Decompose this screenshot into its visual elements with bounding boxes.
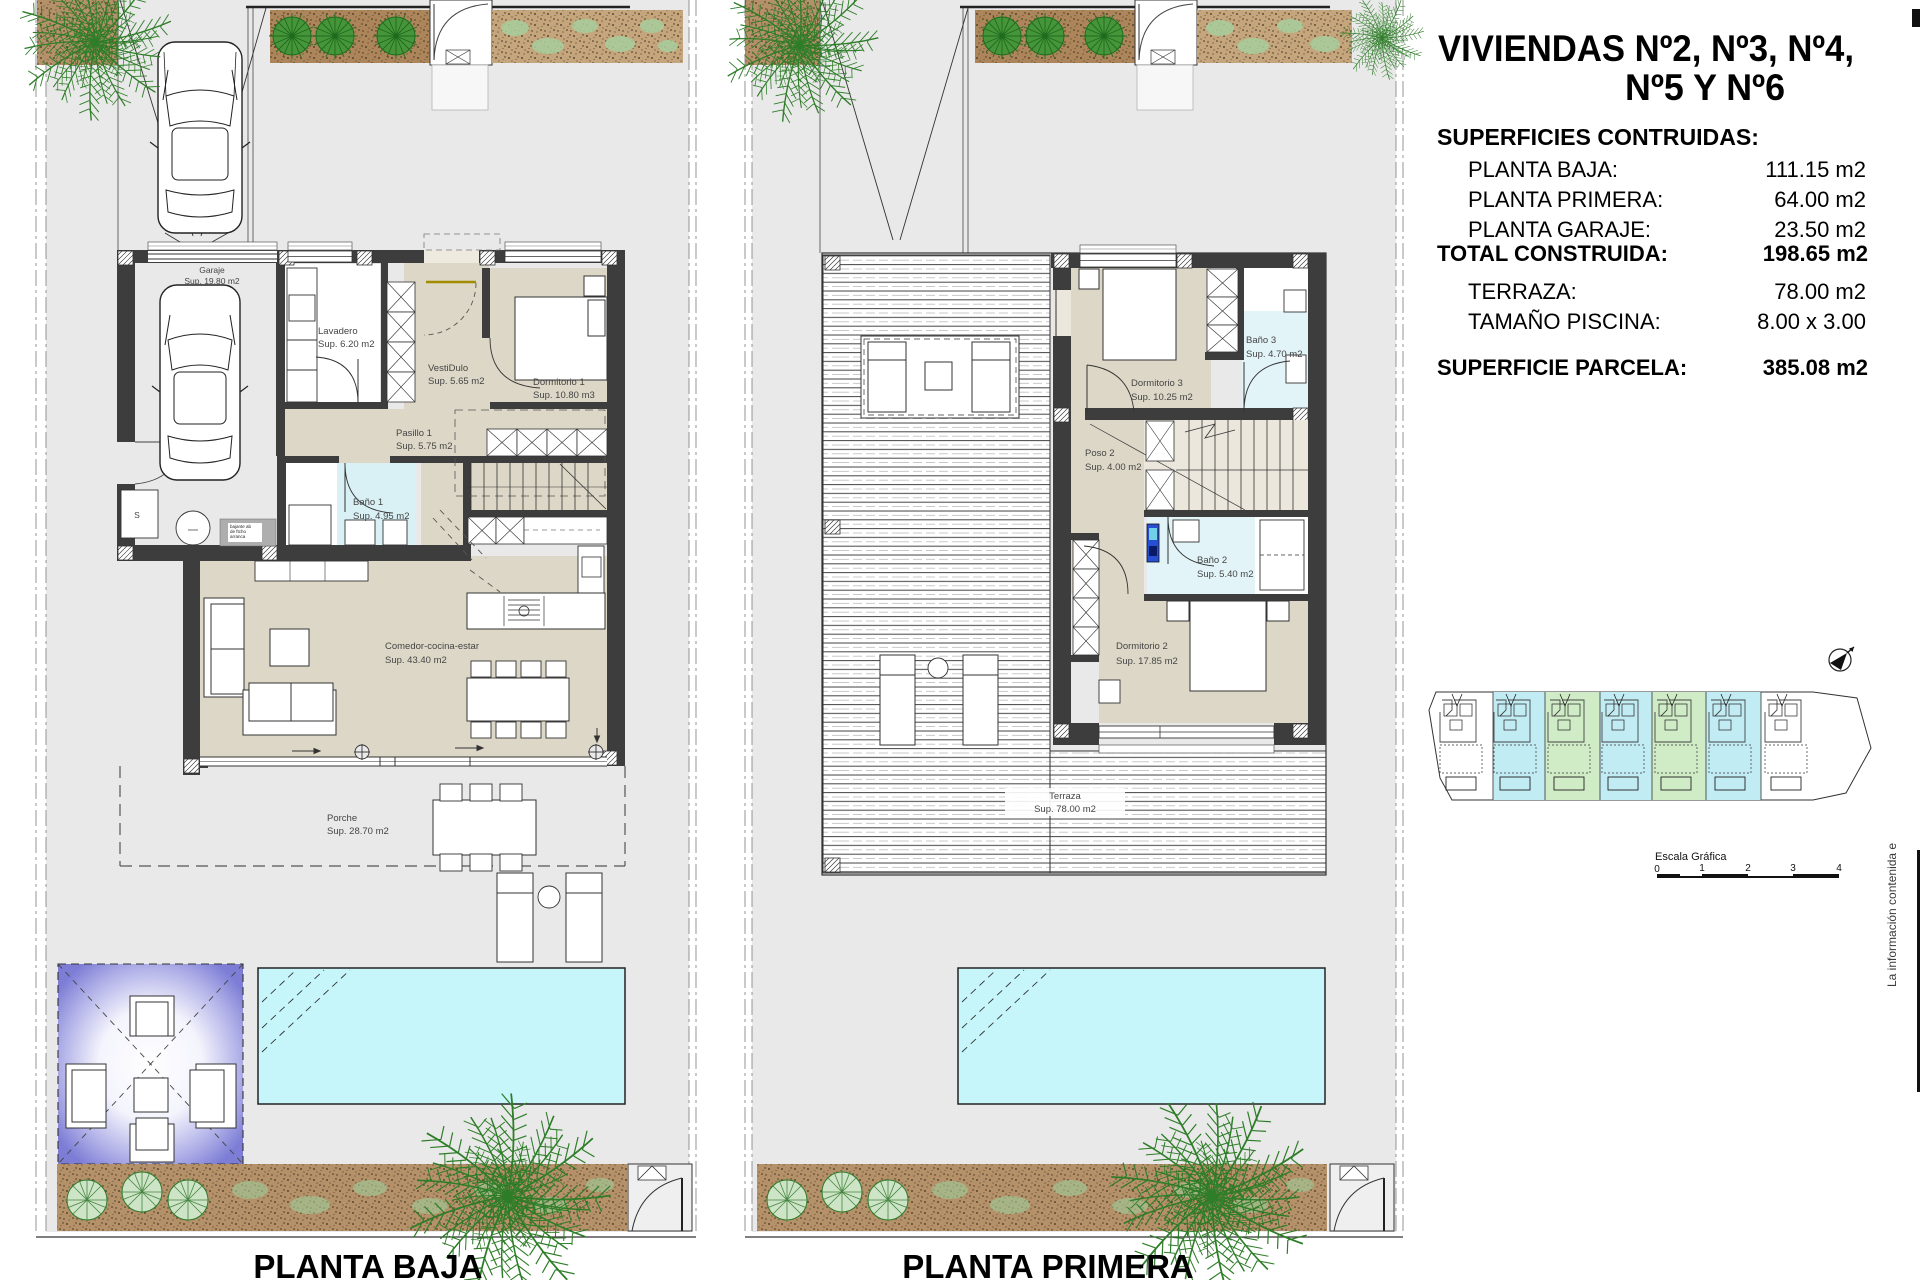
svg-text:3: 3: [1790, 863, 1796, 874]
svg-text:TERRAZA:: TERRAZA:: [1468, 279, 1577, 304]
svg-text:xxxxx: xxxxx: [188, 527, 198, 532]
svg-text:PLANTA BAJA:: PLANTA BAJA:: [1468, 157, 1618, 182]
svg-text:Baño 1: Baño 1: [353, 497, 383, 508]
svg-text:198.65 m2: 198.65 m2: [1763, 241, 1868, 266]
svg-text:SUPERFICIE PARCELA:: SUPERFICIE PARCELA:: [1437, 355, 1687, 380]
svg-text:Escala Gráfica: Escala Gráfica: [1655, 851, 1727, 863]
svg-text:VestiDulo: VestiDulo: [428, 363, 468, 374]
svg-text:Sup. 6.20 m2: Sup. 6.20 m2: [318, 339, 375, 350]
svg-text:PLANTA PRIMERA:: PLANTA PRIMERA:: [1468, 187, 1663, 212]
svg-text:TAMAÑO PISCINA:: TAMAÑO PISCINA:: [1468, 309, 1661, 334]
svg-text:S: S: [134, 510, 140, 520]
svg-text:PLANTA BAJA: PLANTA BAJA: [253, 1248, 482, 1280]
svg-text:0: 0: [1654, 864, 1660, 875]
svg-text:Sup. 78.00 m2: Sup. 78.00 m2: [1034, 804, 1096, 815]
svg-text:SUPERFICIES CONTRUIDAS:: SUPERFICIES CONTRUIDAS:: [1437, 124, 1759, 150]
svg-text:PLANTA PRIMERA: PLANTA PRIMERA: [902, 1248, 1194, 1280]
svg-text:Sup. 5.65 m2: Sup. 5.65 m2: [428, 376, 485, 387]
svg-text:Porche: Porche: [327, 813, 357, 824]
svg-text:Sup. 4.00 m2: Sup. 4.00 m2: [1085, 462, 1142, 473]
svg-text:Sup. 5.75 m2: Sup. 5.75 m2: [396, 441, 453, 452]
svg-text:Dormitorio 3: Dormitorio 3: [1131, 378, 1183, 389]
svg-text:111.15 m2: 111.15 m2: [1765, 157, 1866, 182]
svg-text:Sup. 28.70 m2: Sup. 28.70 m2: [327, 826, 389, 837]
svg-text:4: 4: [1836, 863, 1842, 874]
svg-text:Sup. 4.95 m2: Sup. 4.95 m2: [353, 511, 410, 522]
svg-text:Baño 2: Baño 2: [1197, 555, 1227, 566]
svg-text:8.00 x 3.00: 8.00 x 3.00: [1757, 309, 1866, 334]
svg-text:64.00 m2: 64.00 m2: [1774, 187, 1866, 212]
svg-text:78.00 m2: 78.00 m2: [1774, 279, 1866, 304]
svg-text:Lavadero: Lavadero: [318, 326, 358, 337]
svg-text:Sup. 10.25 m2: Sup. 10.25 m2: [1131, 392, 1193, 403]
svg-text:arranca: arranca: [230, 534, 246, 539]
svg-text:Baño 3: Baño 3: [1246, 335, 1276, 346]
svg-text:Terraza: Terraza: [1049, 791, 1081, 802]
svg-text:Sup. 17.85 m2: Sup. 17.85 m2: [1116, 656, 1178, 667]
svg-text:Nº5 Y Nº6: Nº5 Y Nº6: [1625, 67, 1785, 108]
svg-text:23.50 m2: 23.50 m2: [1774, 217, 1866, 242]
svg-text:Garaje: Garaje: [199, 265, 225, 275]
svg-text:Comedor-cocina-estar: Comedor-cocina-estar: [385, 641, 479, 652]
svg-text:Poso 2: Poso 2: [1085, 448, 1115, 459]
svg-text:Sup. 10.80 m3: Sup. 10.80 m3: [533, 390, 595, 401]
svg-text:385.08 m2: 385.08 m2: [1763, 355, 1868, 380]
svg-text:Sup. 5.40 m2: Sup. 5.40 m2: [1197, 569, 1254, 580]
svg-text:PLANTA GARAJE:: PLANTA GARAJE:: [1468, 217, 1651, 242]
svg-text:Sup. 4.70 m2: Sup. 4.70 m2: [1246, 349, 1303, 360]
svg-text:Pasillo 1: Pasillo 1: [396, 428, 432, 439]
svg-text:La información contenida e: La información contenida e: [1885, 843, 1899, 987]
svg-text:Sup. 43.40 m2: Sup. 43.40 m2: [385, 655, 447, 666]
svg-text:VIVIENDAS Nº2, Nº3, Nº4,: VIVIENDAS Nº2, Nº3, Nº4,: [1438, 28, 1854, 69]
svg-text:Dormitorio 1: Dormitorio 1: [533, 377, 585, 388]
svg-text:1: 1: [1699, 863, 1705, 874]
svg-text:Dormitorio 2: Dormitorio 2: [1116, 641, 1168, 652]
svg-text:Sup. 19.80 m2: Sup. 19.80 m2: [184, 276, 240, 286]
svg-text:TOTAL CONSTRUIDA:: TOTAL CONSTRUIDA:: [1437, 241, 1668, 266]
svg-text:2: 2: [1745, 863, 1751, 874]
